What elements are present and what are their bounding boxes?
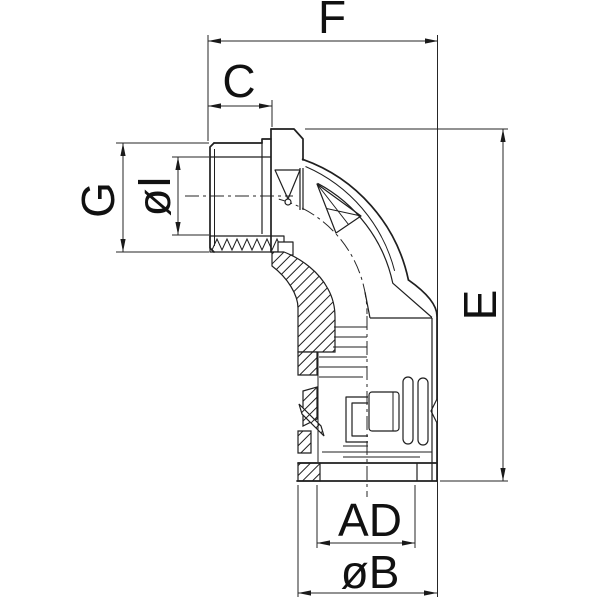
latch-channel	[346, 397, 368, 442]
outlet-lower-lines	[322, 446, 432, 457]
base-flange-section	[298, 463, 320, 481]
dim-label-E: E	[454, 290, 506, 321]
arrowhead-bottom	[175, 222, 180, 235]
arrowhead-top	[120, 143, 125, 156]
flange-top-chamfer	[271, 129, 303, 160]
dimension-AD: AD	[317, 485, 415, 548]
arrowhead-right	[425, 38, 438, 43]
nut-wall-upper-section	[298, 352, 317, 375]
hood-edge	[365, 292, 370, 318]
dimension-E: E	[305, 129, 508, 481]
elbow-fitting-drawing: F C G øI E AD	[0, 0, 600, 600]
arrowhead-bottom	[500, 468, 505, 481]
dim-label-oB: øB	[341, 546, 400, 598]
dim-label-G: G	[72, 182, 124, 218]
dimension-C: C	[208, 55, 272, 127]
bend-tube-section-triangle	[317, 184, 361, 233]
arrowhead-left	[208, 38, 221, 43]
seal-ring-circle	[285, 199, 291, 205]
arrowhead-top	[500, 129, 505, 142]
spring-slot-left	[403, 377, 413, 444]
arrowhead-right	[259, 103, 272, 108]
arrowhead-right	[424, 590, 437, 595]
dim-label-AD: AD	[338, 494, 402, 546]
arrowhead-right	[402, 540, 415, 545]
dim-label-oI: øI	[128, 176, 180, 217]
drawing-canvas: F C G øI E AD	[0, 0, 600, 600]
seal-ring-symbol	[275, 170, 300, 199]
dim-label-C: C	[222, 55, 255, 107]
spring-slot-right	[418, 378, 428, 445]
arrowhead-left	[317, 540, 330, 545]
inner-bend-curve	[318, 183, 433, 317]
bend-liner-wall-section	[272, 252, 335, 352]
arrowhead-left	[298, 590, 311, 595]
thread-runout-step	[262, 139, 271, 143]
seal-groove-edges	[300, 168, 303, 210]
arrowhead-top	[175, 157, 180, 170]
outlet-flare-right	[408, 280, 437, 316]
nut-wall-lower-section	[298, 431, 311, 453]
dim-label-F: F	[318, 0, 346, 43]
latch-tooth	[369, 392, 399, 431]
arrowhead-bottom	[120, 239, 125, 252]
arrowhead-left	[208, 103, 221, 108]
base-flange-edges	[417, 452, 432, 481]
